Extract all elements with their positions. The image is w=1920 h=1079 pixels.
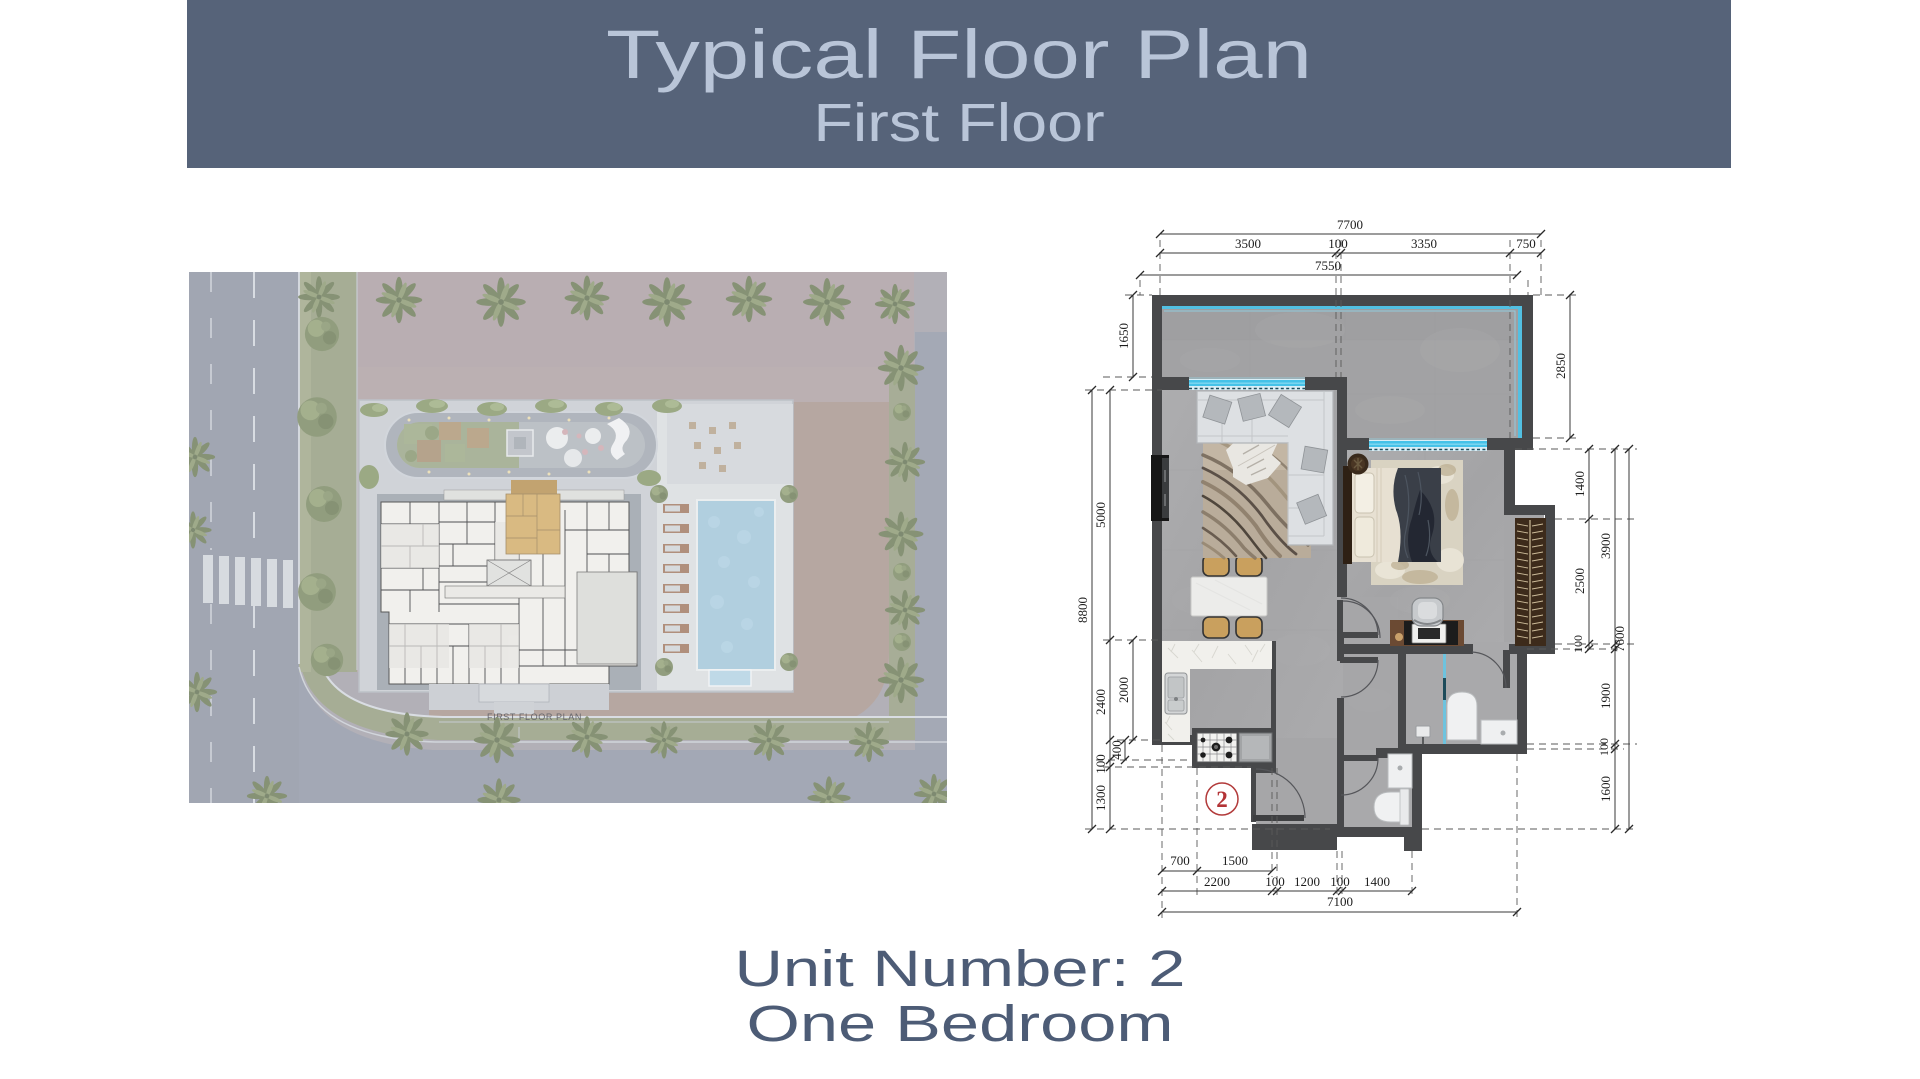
svg-text:100: 100 xyxy=(1330,874,1350,889)
svg-text:2400: 2400 xyxy=(1093,689,1108,715)
svg-text:1900: 1900 xyxy=(1598,683,1613,709)
svg-text:1650: 1650 xyxy=(1116,323,1131,349)
svg-text:400: 400 xyxy=(1109,740,1124,760)
svg-text:750: 750 xyxy=(1516,236,1536,251)
svg-text:1400: 1400 xyxy=(1364,874,1390,889)
svg-text:2: 2 xyxy=(1216,787,1228,812)
svg-text:100: 100 xyxy=(1265,874,1285,889)
svg-text:8800: 8800 xyxy=(1075,597,1090,623)
svg-text:5000: 5000 xyxy=(1093,502,1108,528)
svg-text:1300: 1300 xyxy=(1093,785,1108,811)
svg-text:100: 100 xyxy=(1093,754,1108,774)
svg-text:7700: 7700 xyxy=(1337,217,1363,232)
svg-text:100: 100 xyxy=(1328,236,1348,251)
svg-text:700: 700 xyxy=(1170,853,1190,868)
svg-text:100: 100 xyxy=(1597,738,1611,756)
svg-text:1600: 1600 xyxy=(1598,776,1613,802)
svg-text:2200: 2200 xyxy=(1204,874,1230,889)
svg-text:7550: 7550 xyxy=(1315,258,1341,273)
svg-text:2850: 2850 xyxy=(1553,353,1568,379)
svg-text:1400: 1400 xyxy=(1572,471,1587,497)
svg-text:1200: 1200 xyxy=(1294,874,1320,889)
svg-text:3900: 3900 xyxy=(1598,533,1613,559)
svg-text:7100: 7100 xyxy=(1327,894,1353,909)
svg-text:7600: 7600 xyxy=(1612,626,1627,652)
svg-text:3350: 3350 xyxy=(1411,236,1437,251)
svg-text:1500: 1500 xyxy=(1222,853,1248,868)
svg-text:2000: 2000 xyxy=(1116,677,1131,703)
svg-text:2500: 2500 xyxy=(1572,568,1587,594)
svg-text:100: 100 xyxy=(1571,635,1585,653)
svg-text:3500: 3500 xyxy=(1235,236,1261,251)
